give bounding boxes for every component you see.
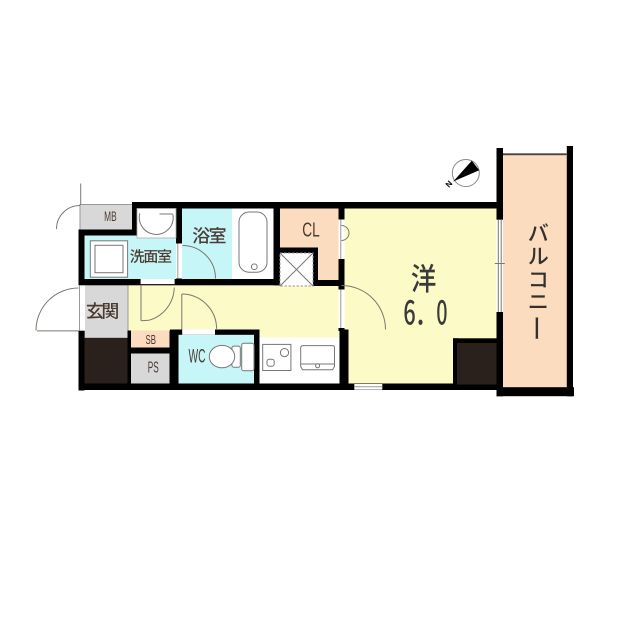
svg-text:WC: WC <box>189 346 206 368</box>
svg-text:PS: PS <box>148 359 159 376</box>
svg-text:CL: CL <box>302 218 320 241</box>
svg-text:SB: SB <box>145 332 156 347</box>
svg-text:MB: MB <box>104 209 117 224</box>
